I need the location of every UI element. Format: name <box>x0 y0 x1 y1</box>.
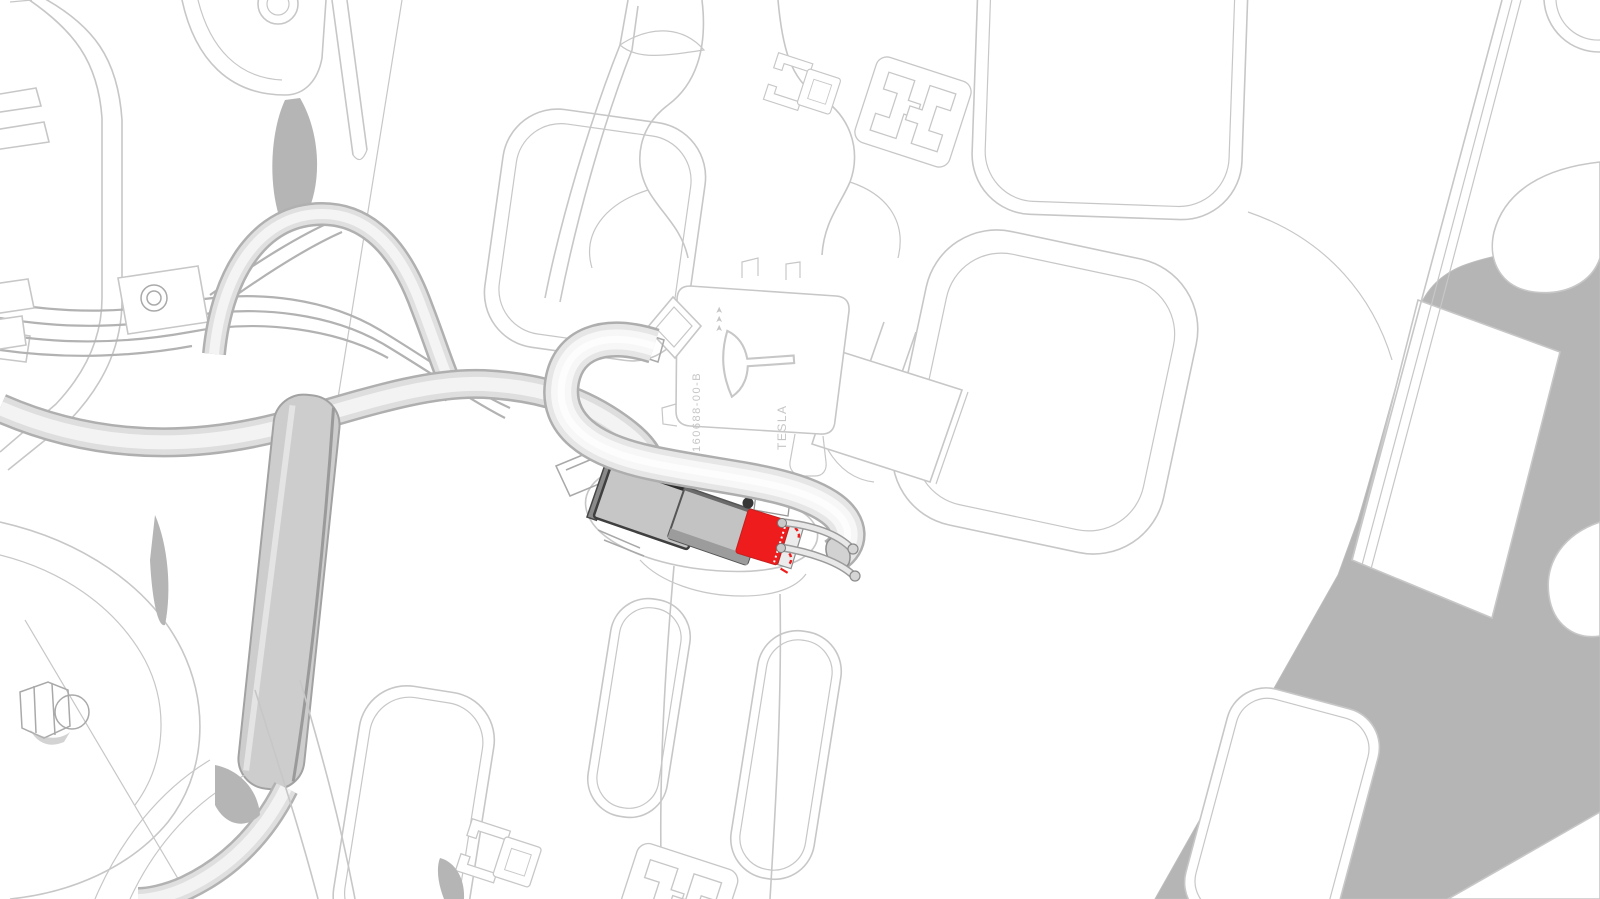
box-top-tab <box>742 258 758 278</box>
cover-cutout-capsule-right <box>725 625 847 885</box>
underbody-white-swirl-top <box>1492 162 1600 293</box>
cable-loop-upper-left <box>214 214 456 396</box>
hex-bolt <box>20 682 89 745</box>
cover-strap-bottom <box>326 566 847 899</box>
part-number-label: 160688-00-B <box>691 372 703 452</box>
mounting-clip-h-bottom <box>611 840 741 899</box>
cable-below-sleeve <box>138 788 286 899</box>
parts-diagram-viewport: 160688-00-B ➤➤➤ TESLA <box>0 0 1600 899</box>
orientation-marks: ➤➤➤ <box>714 305 724 332</box>
cover-cutout-top-right <box>970 0 1250 222</box>
parts-diagram-canvas: 160688-00-B ➤➤➤ TESLA <box>0 0 1600 899</box>
brand-label: TESLA <box>775 404 789 450</box>
locator-dot <box>743 498 754 509</box>
wire-lug <box>777 544 786 553</box>
mounting-clip-h-top <box>852 54 974 170</box>
cover-cutout-bottom-left <box>326 679 501 899</box>
box-lower-tab <box>662 404 677 426</box>
wire-end <box>850 571 860 581</box>
wire-end <box>848 544 858 554</box>
mounting-clip-u-top <box>763 53 842 120</box>
harness-clamp <box>118 266 208 334</box>
wire-lug <box>778 519 787 528</box>
cover-cutout-corner-arcs <box>1544 0 1600 52</box>
cover-cutout-capsule-left <box>582 593 695 823</box>
mounting-clip-u-bottom <box>456 819 544 894</box>
box-top-tab <box>786 262 800 280</box>
cable-sleeve <box>235 392 342 793</box>
highlight-tick <box>780 569 788 573</box>
